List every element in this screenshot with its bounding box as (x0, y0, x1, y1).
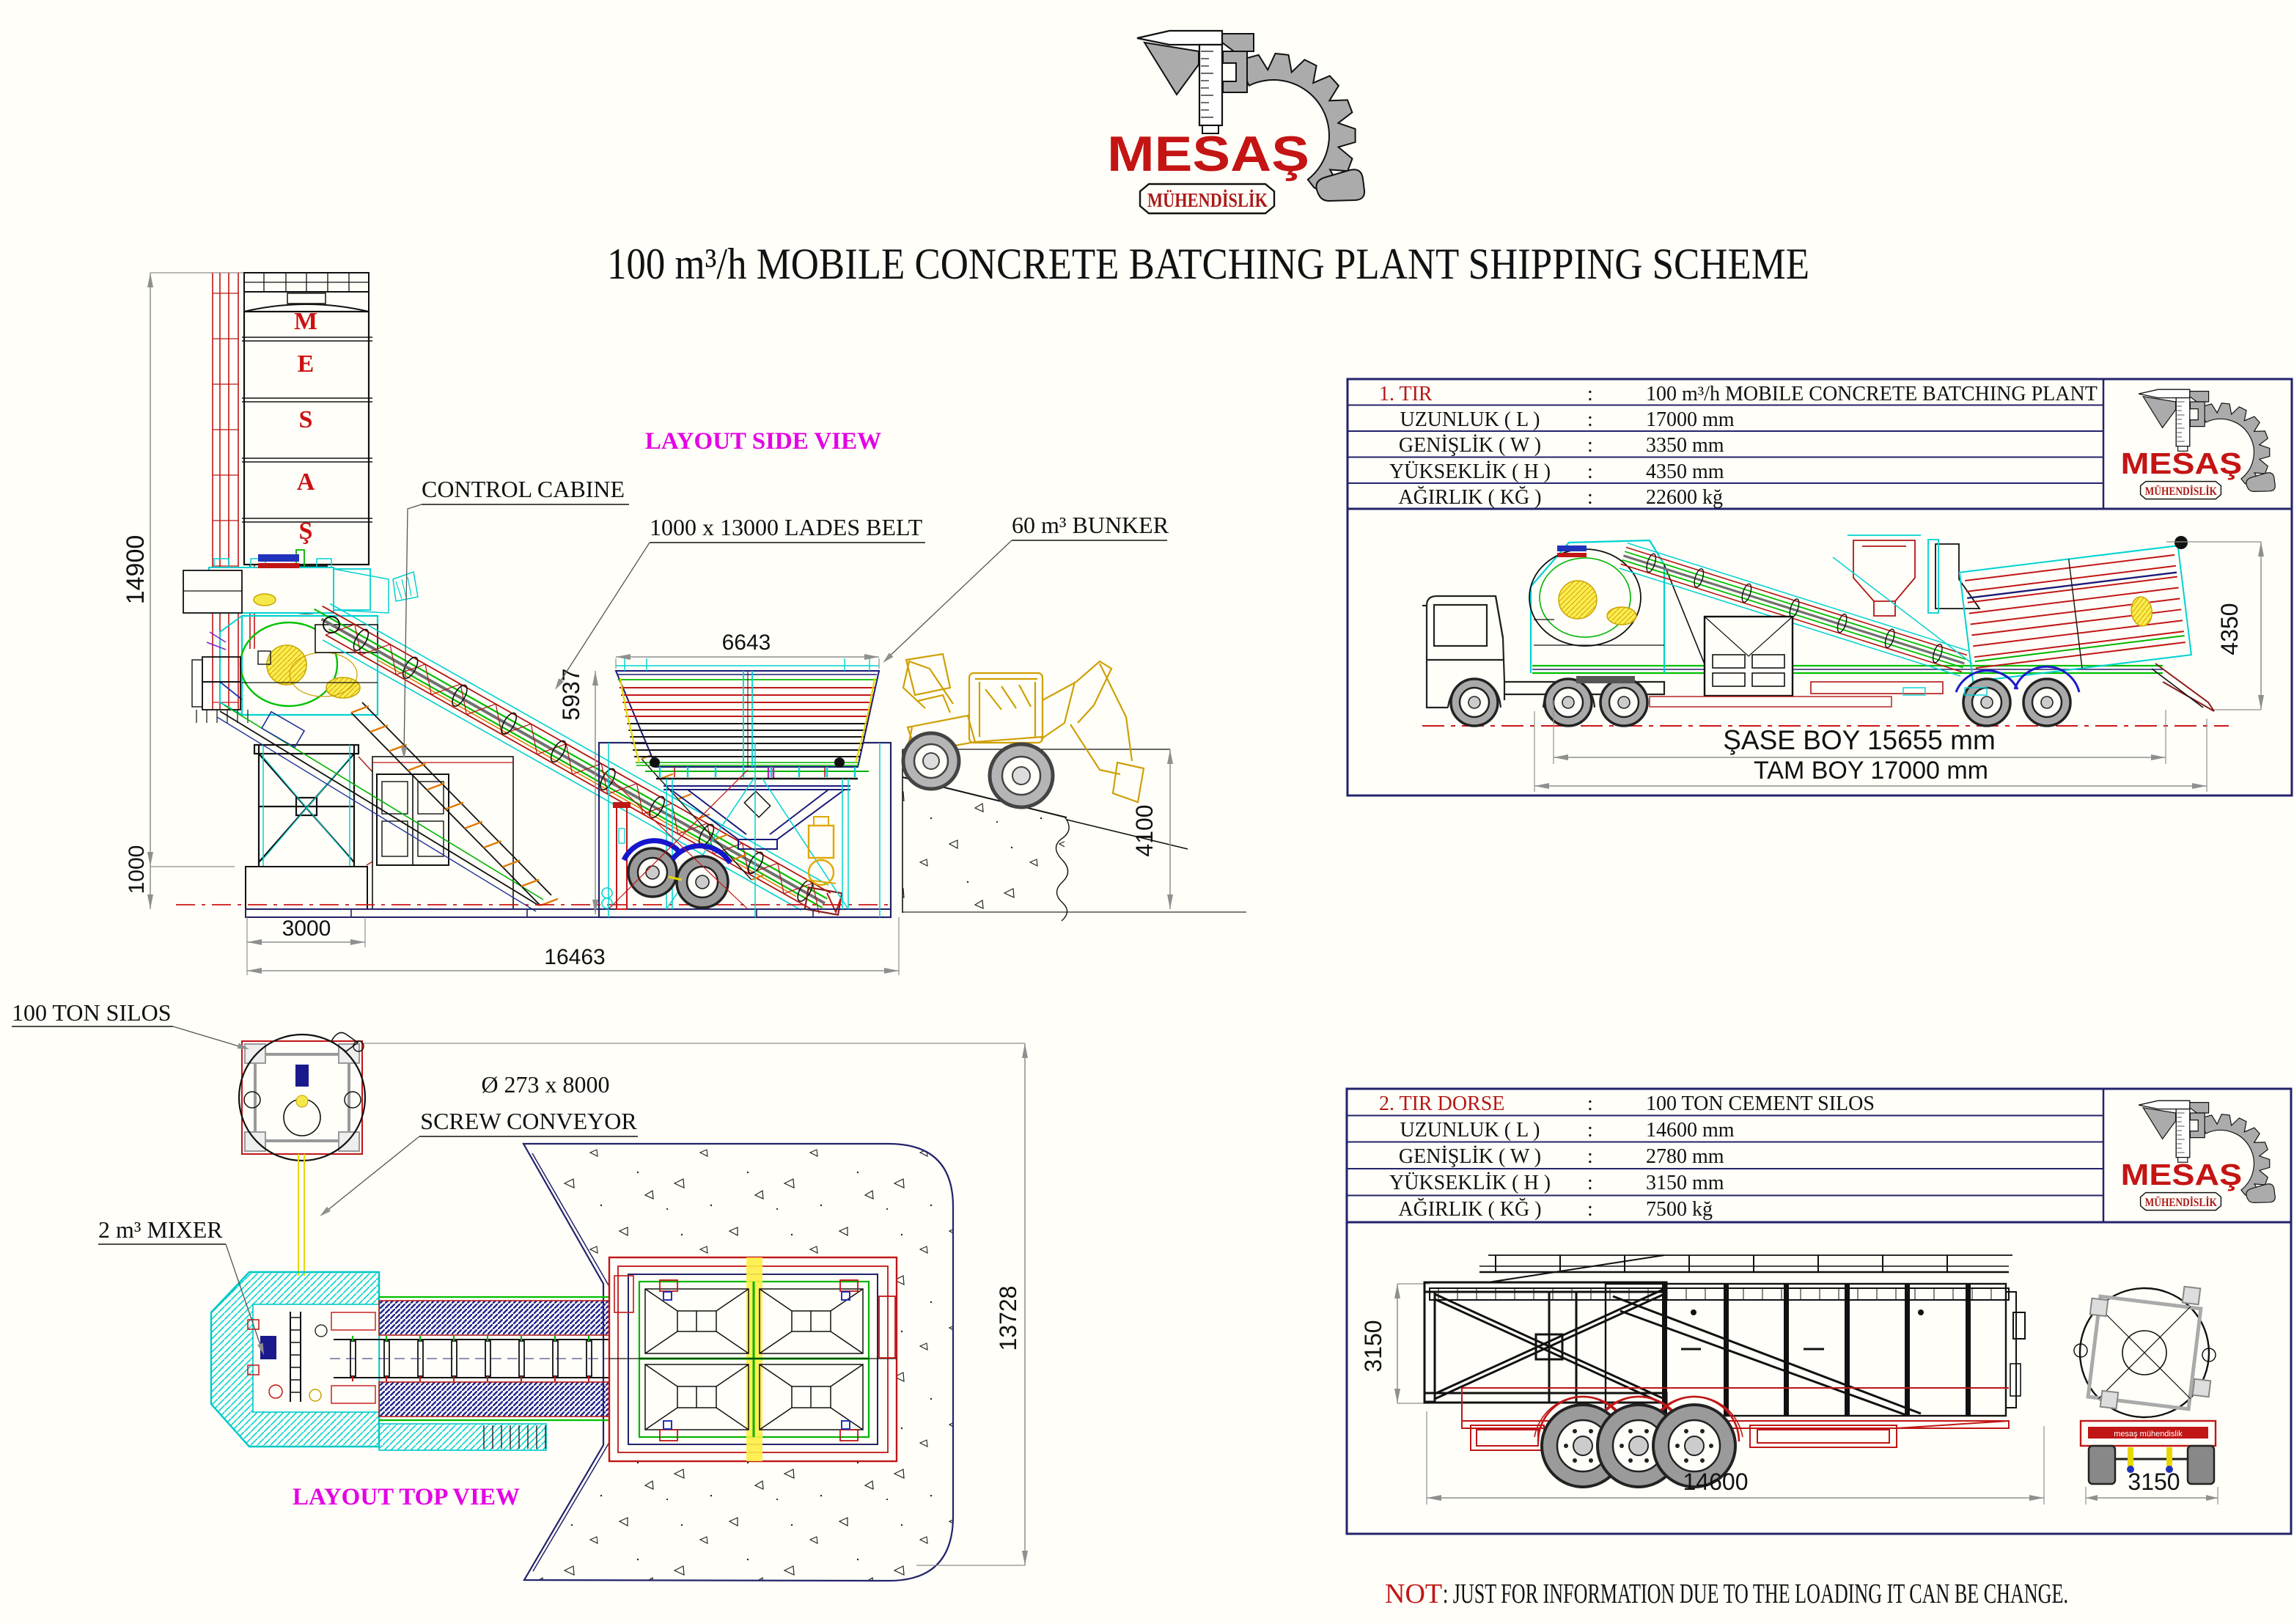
svg-text:3000: 3000 (282, 916, 331, 941)
svg-text::: : (1587, 1198, 1593, 1221)
svg-text:NOT: NOT (1385, 1579, 1442, 1609)
svg-text:CONTROL CABINE: CONTROL CABINE (422, 476, 625, 502)
svg-text:6643: 6643 (722, 631, 771, 655)
svg-text::: : (1587, 1172, 1593, 1194)
svg-text::: : (1587, 486, 1593, 509)
svg-text:S: S (299, 406, 313, 433)
svg-text:22600 kğ: 22600 kğ (1646, 486, 1723, 509)
svg-text:4350: 4350 (2216, 603, 2243, 655)
svg-text:SCREW CONVEYOR: SCREW CONVEYOR (420, 1108, 637, 1134)
svg-text:100 TON CEMENT SILOS: 100 TON CEMENT SILOS (1646, 1092, 1875, 1115)
svg-text:AĞIRLIK ( KĞ ): AĞIRLIK ( KĞ ) (1398, 1198, 1541, 1221)
svg-text:mesaş mühendislik: mesaş mühendislik (2114, 1430, 2183, 1439)
svg-text:GENİŞLİK ( W ): GENİŞLİK ( W ) (1399, 434, 1541, 457)
svg-text:1000 x 13000 LADES BELT: 1000 x 13000 LADES BELT (650, 514, 923, 540)
svg-text:100 m³/h MOBILE CONCRETE BATCH: 100 m³/h MOBILE CONCRETE BATCHING PLANT … (607, 240, 1809, 288)
svg-text::: : (1587, 434, 1593, 457)
svg-text:M: M (294, 308, 317, 335)
svg-text:13728: 13728 (995, 1286, 1021, 1351)
svg-text:LAYOUT SIDE VIEW: LAYOUT SIDE VIEW (645, 428, 881, 455)
svg-text:100 TON SILOS: 100 TON SILOS (12, 999, 172, 1026)
svg-text:7500 kğ: 7500 kğ (1646, 1198, 1713, 1221)
svg-text:4100: 4100 (1131, 804, 1158, 856)
svg-text:2780 mm: 2780 mm (1646, 1145, 1724, 1168)
svg-text:14900: 14900 (122, 535, 150, 605)
svg-text:E: E (298, 350, 315, 378)
svg-text::: : (1587, 408, 1593, 431)
svg-text:1. TIR: 1. TIR (1379, 383, 1433, 405)
svg-text:YÜKSEKLİK ( H ): YÜKSEKLİK ( H ) (1389, 1172, 1551, 1194)
svg-text:Ş: Ş (299, 518, 313, 545)
svg-text:3150 mm: 3150 mm (1646, 1172, 1724, 1194)
svg-text:Ø 273 x 8000: Ø 273 x 8000 (481, 1071, 609, 1098)
svg-text:60 m³ BUNKER: 60 m³ BUNKER (1012, 512, 1169, 538)
svg-text:TAM BOY 17000 mm: TAM BOY 17000 mm (1754, 757, 1988, 785)
svg-text:14600: 14600 (1683, 1469, 1749, 1495)
svg-text:LAYOUT TOP VIEW: LAYOUT TOP VIEW (293, 1484, 520, 1510)
svg-text:ŞASE BOY 15655 mm: ŞASE BOY 15655 mm (1723, 725, 1996, 755)
svg-text::: : (1587, 460, 1593, 483)
svg-text::: : (1587, 1145, 1593, 1168)
svg-text:14600 mm: 14600 mm (1646, 1119, 1735, 1142)
svg-text:UZUNLUK ( L ): UZUNLUK ( L ) (1400, 408, 1540, 431)
svg-text:4350 mm: 4350 mm (1646, 460, 1724, 483)
svg-text:2 m³ MIXER: 2 m³ MIXER (98, 1216, 223, 1243)
svg-text:1000: 1000 (125, 845, 149, 894)
svg-text:3150: 3150 (2128, 1469, 2180, 1495)
svg-text:3350 mm: 3350 mm (1646, 434, 1724, 457)
svg-text:AĞIRLIK ( KĞ ): AĞIRLIK ( KĞ ) (1398, 486, 1541, 509)
svg-text:16463: 16463 (544, 945, 605, 969)
svg-text:: JUST FOR INFORMATION DUE TO: : JUST FOR INFORMATION DUE TO THE LOADIN… (1443, 1579, 2068, 1609)
svg-text:GENİŞLİK ( W ): GENİŞLİK ( W ) (1399, 1145, 1541, 1168)
svg-text:3150: 3150 (1360, 1320, 1386, 1372)
svg-text::: : (1587, 1119, 1593, 1142)
svg-text::: : (1587, 1092, 1593, 1115)
svg-text:UZUNLUK ( L ): UZUNLUK ( L ) (1400, 1119, 1540, 1142)
svg-text:YÜKSEKLİK ( H ): YÜKSEKLİK ( H ) (1389, 460, 1551, 483)
svg-text::: : (1587, 383, 1593, 405)
svg-text:17000 mm: 17000 mm (1646, 408, 1735, 431)
svg-text:100 m³/h MOBILE CONCRETE BATCH: 100 m³/h MOBILE CONCRETE BATCHING PLANT (1646, 383, 2098, 405)
svg-text:5937: 5937 (558, 668, 584, 720)
svg-text:2. TIR DORSE: 2. TIR DORSE (1379, 1092, 1504, 1115)
svg-text:A: A (297, 469, 315, 496)
